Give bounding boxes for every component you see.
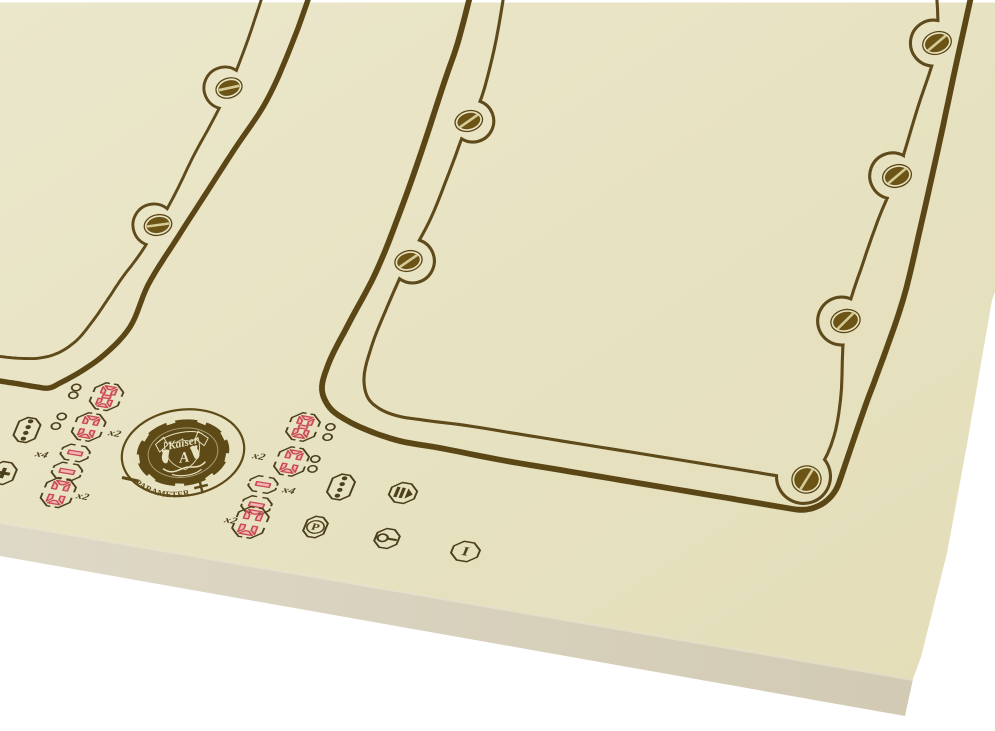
svg-text:A: A bbox=[177, 449, 190, 466]
